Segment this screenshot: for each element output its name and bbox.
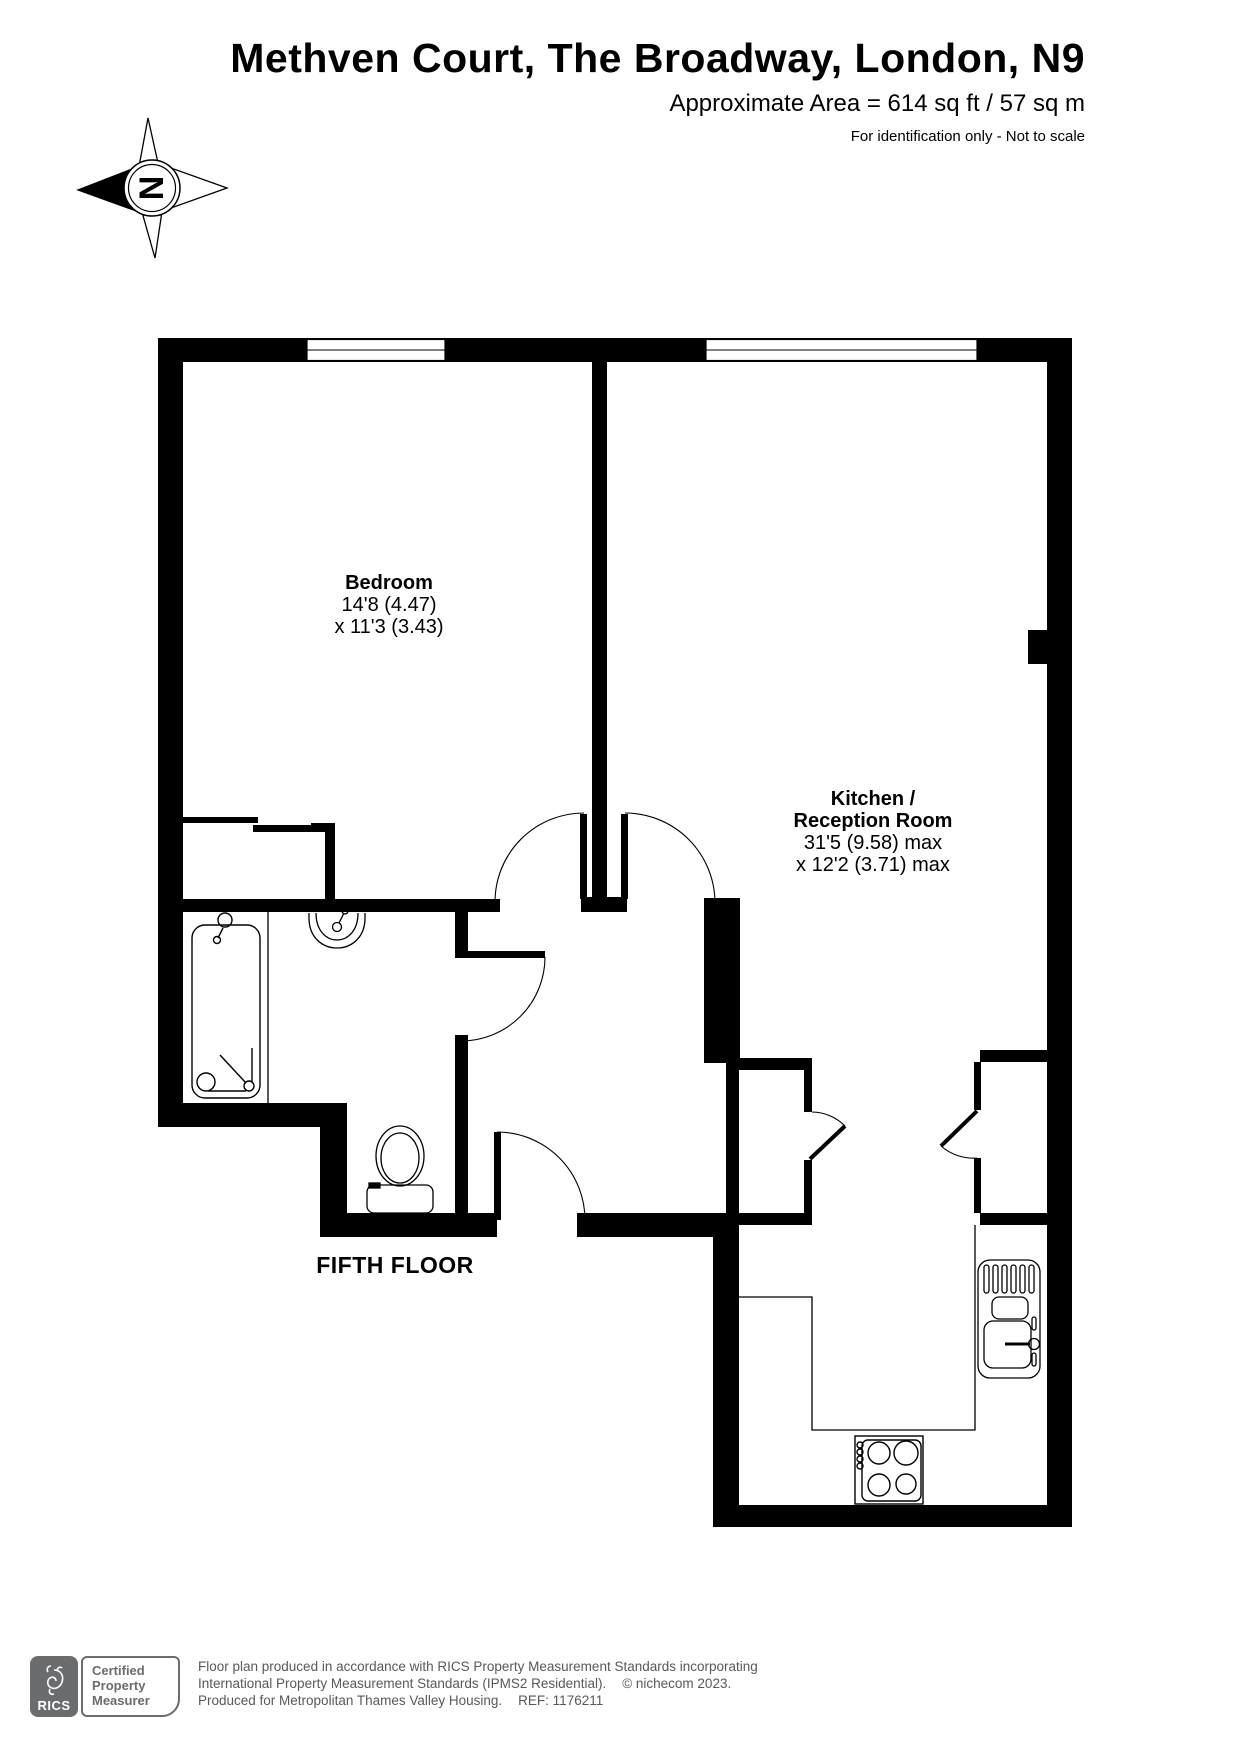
- room-name: Reception Room: [794, 810, 953, 832]
- room-name: Bedroom: [334, 572, 443, 594]
- basin-icon: [309, 908, 365, 948]
- footer-line1: Floor plan produced in accordance with R…: [198, 1658, 758, 1675]
- rics-wordmark: RICS: [37, 1698, 70, 1713]
- room-dim: 31'5 (9.58) max: [794, 832, 953, 854]
- footer-line3: Produced for Metropolitan Thames Valley …: [198, 1692, 758, 1709]
- rics-logo: RICS: [30, 1656, 78, 1717]
- footer-line2: International Property Measurement Stand…: [198, 1675, 758, 1692]
- reference-number: REF: 1176211: [518, 1693, 603, 1708]
- exterior-walls: [158, 338, 1072, 1527]
- hob-icon: [855, 1436, 923, 1504]
- entrance-door-leaf: [494, 1132, 501, 1220]
- room-dim: x 12'2 (3.71) max: [794, 854, 953, 876]
- room-dim: x 11'3 (3.43): [334, 616, 443, 638]
- bedroom-door-leaf: [580, 814, 587, 899]
- copyright-nichecom: © nichecom 2023.: [622, 1676, 731, 1691]
- floor-label: FIFTH FLOOR: [316, 1252, 474, 1279]
- footer: RICS Certified Property Measurer Floor p…: [30, 1656, 758, 1717]
- floorplan-page: Methven Court, The Broadway, London, N9 …: [0, 0, 1241, 1755]
- room-dim: 14'8 (4.47): [334, 594, 443, 616]
- sink-unit-icon: [978, 1260, 1040, 1378]
- footer-disclaimer: Floor plan produced in accordance with R…: [198, 1656, 758, 1709]
- bath-icon: [192, 913, 260, 1098]
- rics-lion-icon: [30, 1662, 78, 1698]
- kitchen-reception-label: Kitchen / Reception Room 31'5 (9.58) max…: [794, 788, 953, 876]
- kitchen-door-leaf: [621, 814, 628, 899]
- bedroom-label: Bedroom 14'8 (4.47) x 11'3 (3.43): [334, 572, 443, 638]
- floor-plan: [0, 0, 1241, 1755]
- room-name: Kitchen /: [794, 788, 953, 810]
- toilet-icon: [367, 1126, 433, 1213]
- wardrobe: [183, 817, 316, 832]
- kitchen-counter-lines: [739, 1225, 975, 1430]
- bathroom-door-leaf: [461, 951, 545, 958]
- wall-notch: [1028, 630, 1047, 664]
- certified-measurer-badge: Certified Property Measurer: [81, 1656, 180, 1717]
